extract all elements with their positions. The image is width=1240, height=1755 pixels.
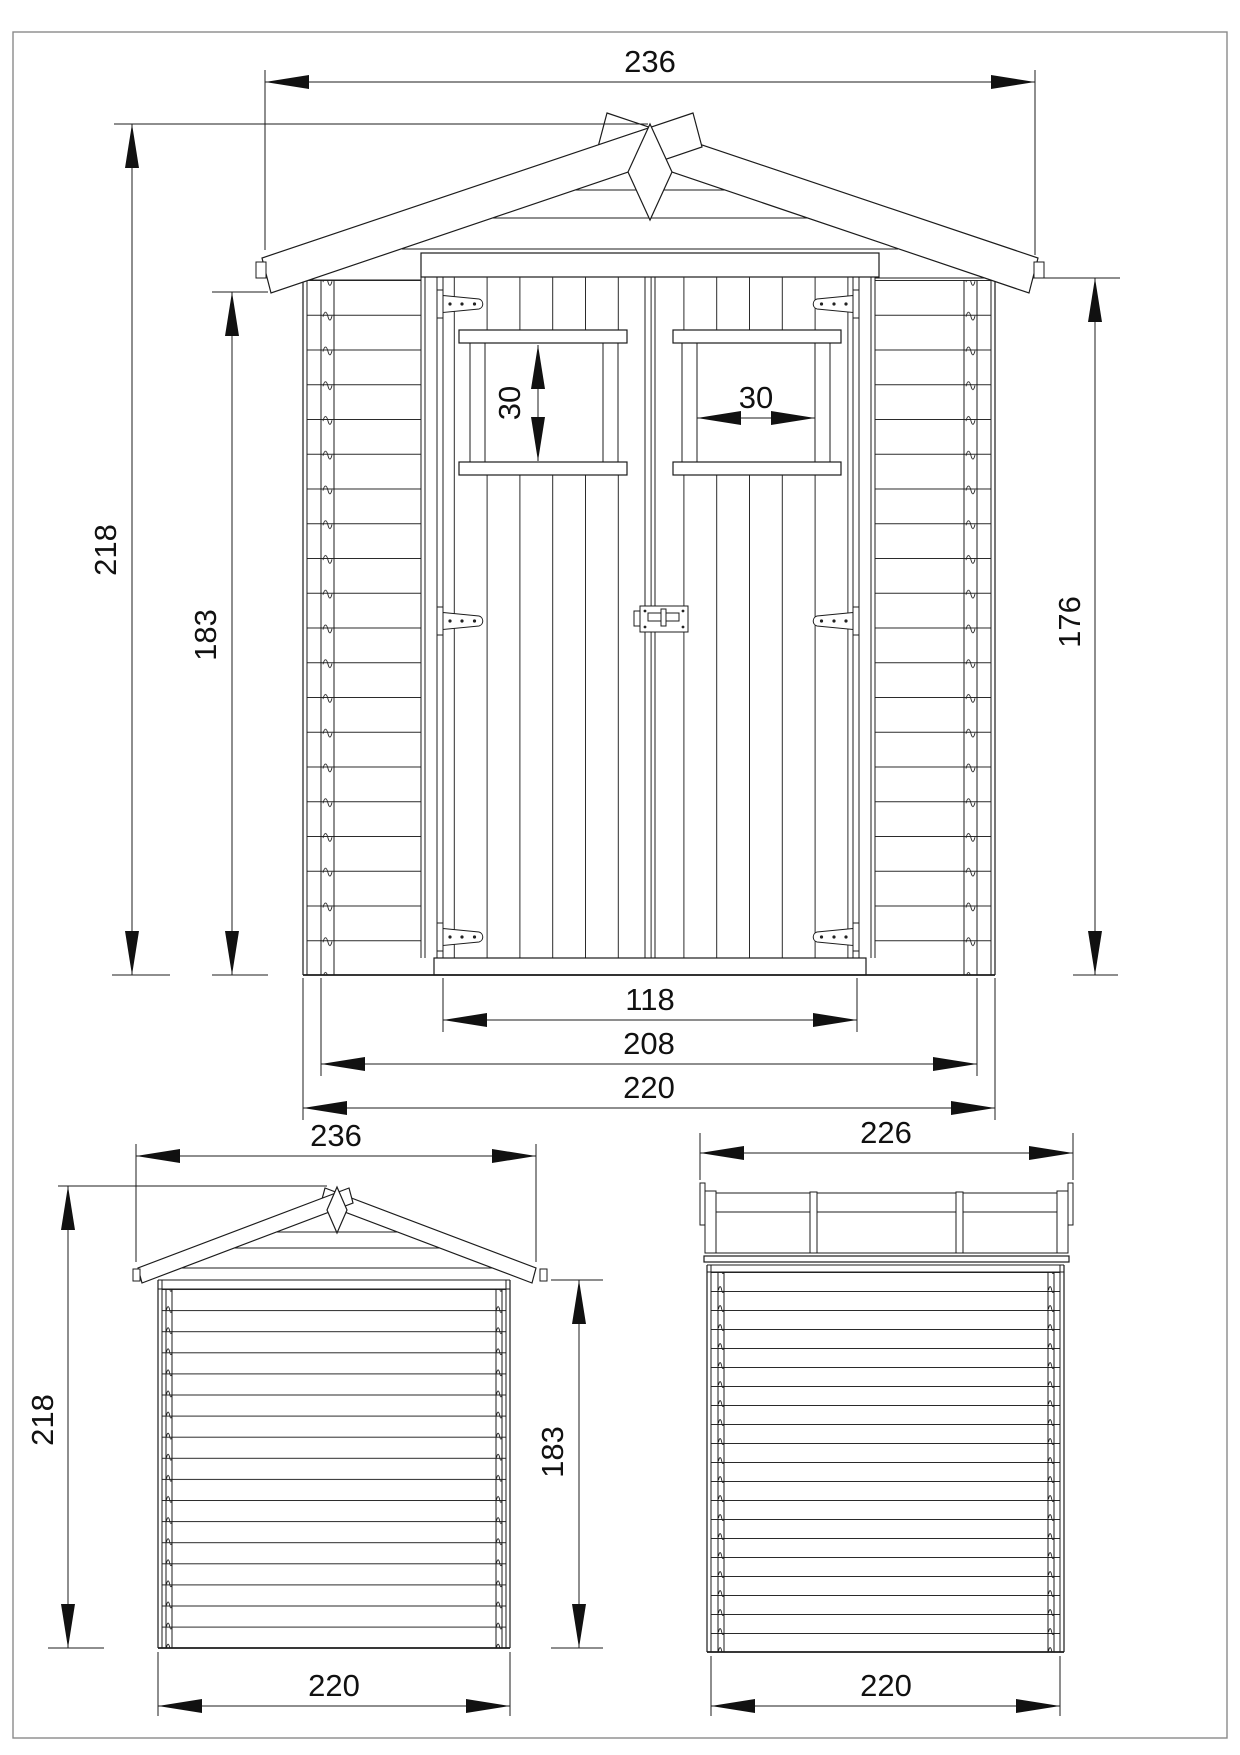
door-window-left: 30: [459, 330, 627, 475]
dim-label: 226: [860, 1115, 912, 1150]
dim-label: 183: [188, 609, 223, 661]
dim-label: 218: [25, 1394, 60, 1446]
front-left-wall: [303, 280, 421, 975]
dim-label: 208: [623, 1026, 675, 1061]
front-elevation: 30 30: [88, 44, 1120, 1120]
dim-front-side-height: 176: [1052, 278, 1118, 975]
door-window-right: 30: [673, 330, 841, 475]
barrel-bolt-latch: [634, 606, 688, 632]
shed-technical-drawing: 30 30: [0, 0, 1240, 1755]
dim-label: 220: [860, 1668, 912, 1703]
side-elevation: 226 220: [700, 1115, 1073, 1716]
dim-label: 236: [310, 1118, 362, 1153]
fascia-edge: [1068, 1183, 1073, 1225]
dim-label: 176: [1052, 596, 1087, 648]
window-sill: [459, 462, 627, 475]
door-header-beam: [421, 253, 879, 277]
dim-label: 30: [739, 380, 773, 415]
roof-end-board: [705, 1191, 716, 1253]
technical-drawing-page: 30 30: [0, 0, 1240, 1755]
window-header: [673, 330, 841, 343]
dim-front-wall-height: 183: [188, 292, 268, 975]
dim-label: 30: [492, 386, 527, 420]
fascia-edge: [700, 1183, 705, 1225]
roof-rafter: [810, 1192, 817, 1253]
fascia-end-cap: [540, 1269, 547, 1281]
dim-rear-base-width: 220: [158, 1652, 510, 1716]
dim-front-door-width: 118: [443, 978, 857, 1032]
dim-side-base-depth: 220: [711, 1656, 1060, 1716]
door-bottom-rail: [434, 958, 866, 975]
fascia-end-cap: [1034, 262, 1044, 278]
fascia-end-cap: [133, 1269, 140, 1281]
fascia-end-cap: [256, 262, 266, 278]
dim-side-roof-depth: 226: [700, 1115, 1073, 1180]
dim-label: 218: [88, 524, 123, 576]
roof-end-board: [1057, 1191, 1068, 1253]
rear-wall: [158, 1280, 510, 1648]
window-header: [459, 330, 627, 343]
side-roof-assembly: [700, 1183, 1073, 1262]
window-sill: [673, 462, 841, 475]
dim-rear-wall-height: 183: [535, 1280, 603, 1648]
dim-label: 183: [535, 1426, 570, 1478]
roof-rafter: [956, 1192, 963, 1253]
dim-label: 220: [623, 1070, 675, 1105]
dim-label: 118: [625, 982, 674, 1017]
roof-fascia-left: [138, 1188, 353, 1283]
roof-deck-edge: [704, 1256, 1069, 1262]
dim-label: 236: [624, 44, 676, 79]
side-wall: [707, 1265, 1064, 1652]
rear-elevation: 236 218 183 220: [25, 1118, 603, 1716]
rear-roof: [133, 1187, 547, 1283]
dim-label: 220: [308, 1668, 360, 1703]
